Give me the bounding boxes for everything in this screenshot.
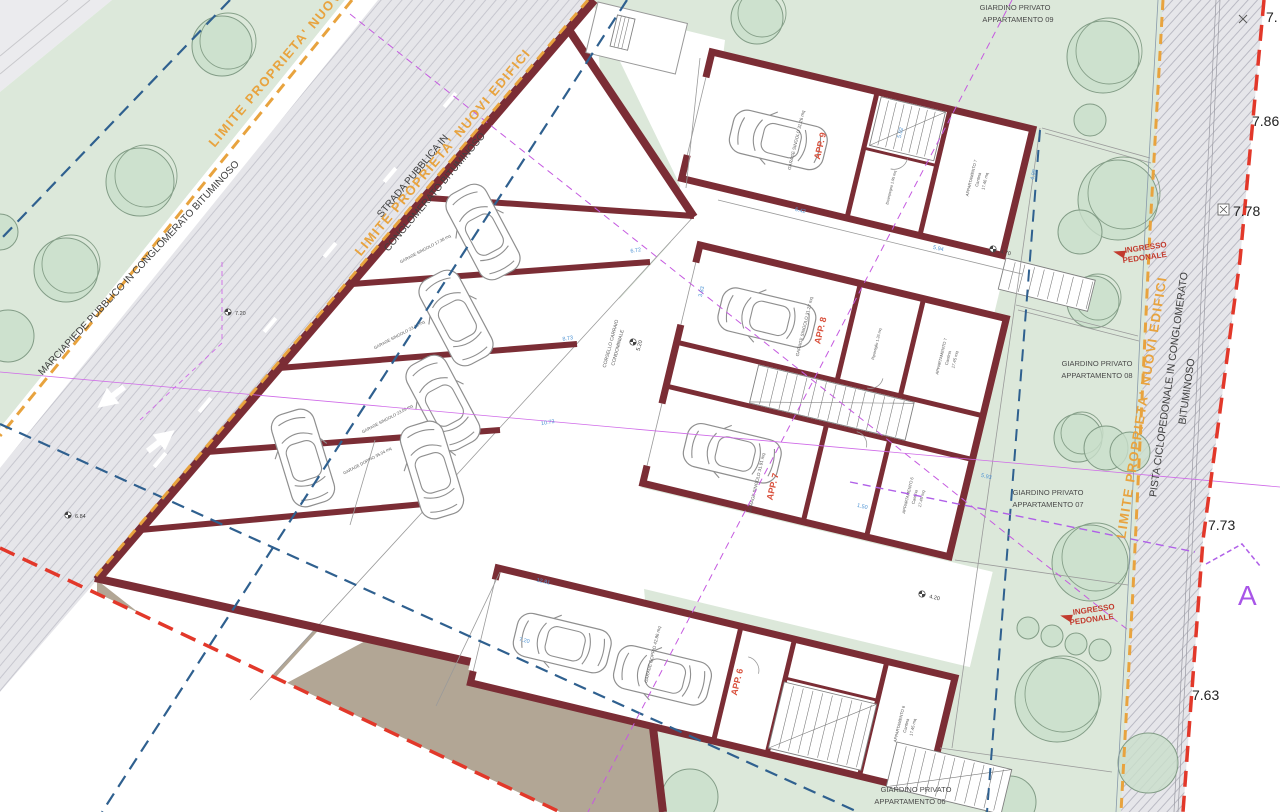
section-marker-label: A [1238,580,1257,611]
bush-icon [1065,633,1087,655]
level-marker-icon [630,339,636,345]
garden-label: GIARDINO PRIVATO [980,3,1051,12]
garden-label: APPARTAMENTO 06 [874,797,945,806]
edge-elevation: 7.63 [1192,687,1219,703]
garden-label: APPARTAMENTO 07 [1012,500,1083,509]
garden-label: GIARDINO PRIVATO [1062,359,1133,368]
tree-icon [1118,733,1178,793]
section-arrow-icon [1206,544,1260,566]
edge-elevation: 7. [1266,9,1278,25]
site-plan-svg: GARAGE SINGOLO 17.38 mq GARAGE SINGOLO 2… [0,0,1280,812]
garden-label: GIARDINO PRIVATO [881,785,952,794]
bush-icon [1017,617,1039,639]
spot-elevation: 6.84 [75,514,86,520]
garden-label: APPARTAMENTO 09 [982,15,1053,24]
edge-elevation: 7.86 [1252,113,1279,129]
level-marker-icon [990,246,996,252]
edge-elevation: 7.78 [1233,203,1260,219]
level-marker-icon [225,309,231,315]
tree-icon [1058,210,1102,254]
tree-icon [1074,104,1106,136]
edge-elevation: 7.73 [1208,517,1235,533]
level-marker-icon [65,512,71,518]
bush-icon [1041,625,1063,647]
spot-elevation: 7.20 [235,311,246,317]
site-plan-page: GARAGE SINGOLO 17.38 mq GARAGE SINGOLO 2… [0,0,1280,812]
garden-label: GIARDINO PRIVATO [1013,488,1084,497]
bush-icon [1089,639,1111,661]
survey-marker-icon [1218,204,1229,215]
level-marker-icon [919,591,925,597]
garden-label: APPARTAMENTO 08 [1061,371,1132,380]
